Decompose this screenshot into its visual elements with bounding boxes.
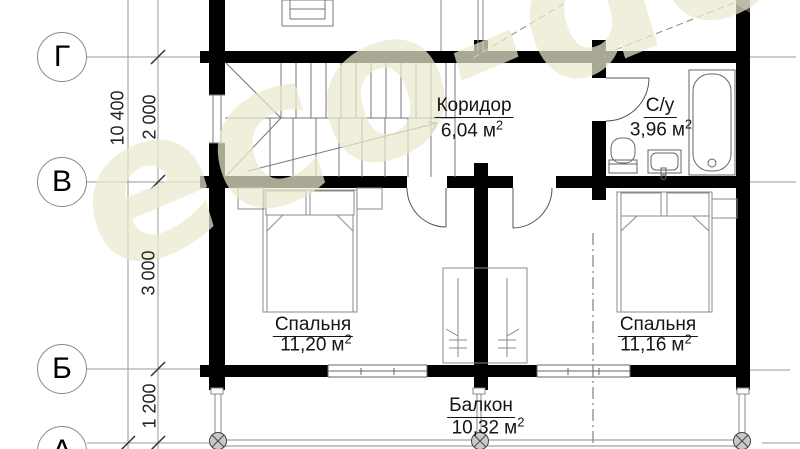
grid-axis-b: Б — [37, 344, 87, 394]
room-label-bathroom: С/у — [644, 95, 677, 117]
area-sup: 2 — [496, 117, 503, 132]
dimension-b-a: 1 200 — [140, 383, 161, 428]
grid-axis-v: В — [37, 157, 87, 207]
room-area-bedroom-left: 11,20м2 — [280, 331, 351, 356]
stair-window — [209, 95, 225, 143]
dimension-overall: 10 400 — [108, 90, 129, 145]
floor-plan-drawing — [0, 0, 800, 449]
window-bedroom-right — [537, 365, 630, 377]
room-name: С/у — [644, 95, 677, 118]
dimension-g-v: 2 000 — [140, 94, 161, 139]
floor-plan-page: eco-dom.ru Г В Б А 10 400 2 000 3 000 1 … — [0, 0, 800, 449]
room-area-bathroom: 3,96м2 — [630, 116, 692, 141]
area-sup: 2 — [517, 414, 524, 429]
toilet — [609, 138, 637, 173]
window-bedroom-left — [328, 365, 427, 377]
room-area-corridor: 6,04м2 — [441, 117, 503, 142]
grid-axis-g-label: Г — [54, 40, 70, 74]
room-area-bedroom-right: 11,16м2 — [620, 331, 691, 356]
area-value: 10,32 — [452, 418, 500, 439]
area-sup: 2 — [684, 331, 691, 346]
grid-axis-a-label: А — [52, 434, 72, 449]
door-bedroom-right — [513, 188, 552, 228]
area-sup: 2 — [685, 116, 692, 131]
balcony-post — [210, 433, 227, 449]
area-sup: 2 — [344, 331, 351, 346]
grid-axis-b-label: Б — [52, 352, 72, 386]
area-value: 11,16 — [620, 335, 666, 356]
area-unit: м — [483, 121, 496, 142]
bed-right — [617, 192, 737, 312]
area-unit: м — [504, 418, 517, 439]
grid-axis-g: Г — [37, 32, 87, 82]
area-unit: м — [671, 335, 684, 356]
chimney — [282, 0, 333, 26]
balcony-post — [734, 433, 751, 449]
door-bathroom — [606, 78, 649, 121]
room-label-corridor: Коридор — [434, 95, 513, 117]
room-area-balcony: 10,32м2 — [452, 414, 525, 439]
dimension-grid — [87, 0, 800, 449]
grid-axis-v-label: В — [52, 165, 72, 199]
bathtub — [689, 70, 735, 175]
stairs — [225, 63, 455, 177]
area-unit: м — [331, 335, 344, 356]
door-bedroom-left — [407, 188, 446, 227]
room-name: Коридор — [434, 95, 513, 118]
sink — [648, 150, 681, 180]
area-value: 11,20 — [280, 335, 326, 356]
area-value: 6,04 — [441, 121, 478, 142]
dimension-v-b: 3 000 — [139, 250, 160, 295]
area-unit: м — [672, 120, 685, 141]
bed-left — [238, 188, 382, 312]
area-value: 3,96 — [630, 120, 667, 141]
